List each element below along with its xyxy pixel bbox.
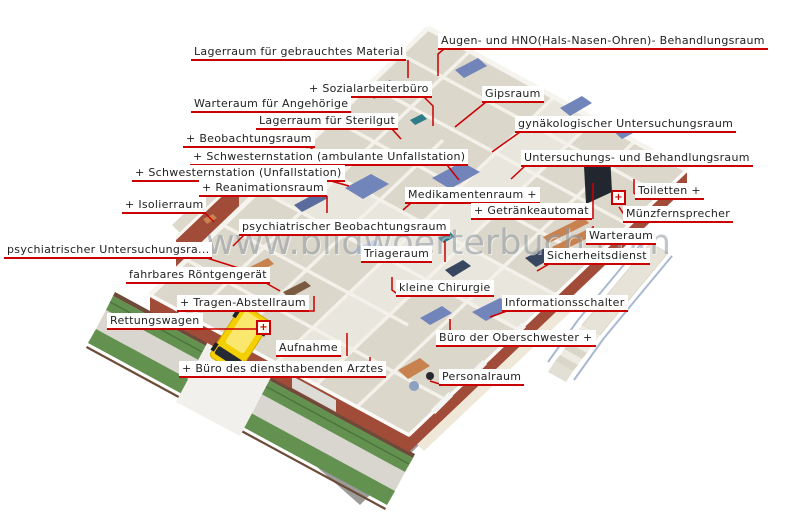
label-warteraum-fuer-angehoerige[interactable]: Warteraum für Angehörige <box>191 96 351 113</box>
label-medikamentenraum[interactable]: Medikamentenraum + <box>405 187 540 204</box>
label-schwesternstation-ambulante[interactable]: + Schwesternstation (ambulante Unfallsta… <box>190 149 468 166</box>
label-personalraum[interactable]: Personalraum <box>439 369 524 386</box>
label-muenzfernsprecher[interactable]: Münzfernsprecher <box>623 206 733 223</box>
label-fahrbares-roentgengeraet[interactable]: fahrbares Röntgengerät <box>126 267 270 284</box>
label-triageraum[interactable]: Triageraum <box>361 246 432 263</box>
label-kleine-chirurgie[interactable]: kleine Chirurgie <box>396 280 494 297</box>
label-lagerraum-fuer-sterilgut[interactable]: Lagerraum für Sterilgut <box>256 113 398 130</box>
label-untersuchungs-und-behandlungsraum[interactable]: Untersuchungs- und Behandlungsraum <box>521 150 753 167</box>
plus-marker-muenzfernsprecher[interactable]: + <box>611 190 626 205</box>
label-isolierraum[interactable]: + Isolierraum <box>122 197 206 214</box>
hospital-emergency-diagram: www.bildwoerterbuch.com <box>0 0 800 527</box>
label-gynaekologischer-untersuchungsraum[interactable]: gynäkologischer Untersuchungsraum <box>515 116 736 133</box>
label-toiletten[interactable]: Toiletten + <box>635 183 704 200</box>
label-getraenkeautomat[interactable]: + Getränkeautomat <box>471 203 592 220</box>
label-gipsraum[interactable]: Gipsraum <box>482 86 544 103</box>
label-lagerraum-gebrauchtes-material[interactable]: Lagerraum für gebrauchtes Material <box>191 44 406 61</box>
label-aufnahme[interactable]: Aufnahme <box>276 340 341 357</box>
label-psychiatrischer-beobachtungsraum[interactable]: psychiatrischer Beobachtungsraum <box>239 219 450 236</box>
label-reanimationsraum[interactable]: + Reanimationsraum <box>199 180 327 197</box>
label-buero-des-diensthabenden-arztes[interactable]: + Büro des diensthabenden Arztes <box>179 361 386 378</box>
label-augen-hno-behandlungsraum[interactable]: Augen- und HNO(Hals-Nasen-Ohren)- Behand… <box>438 33 768 50</box>
plus-marker-rettungswagen[interactable]: + <box>256 320 271 335</box>
label-informationsschalter[interactable]: Informationsschalter <box>502 295 628 312</box>
label-warteraum[interactable]: Warteraum <box>586 228 656 245</box>
leader-lines <box>0 0 800 527</box>
label-tragen-abstellraum[interactable]: + Tragen-Abstellraum <box>177 295 309 312</box>
label-sicherheitsdienst[interactable]: Sicherheitsdienst <box>544 248 650 265</box>
label-beobachtungsraum[interactable]: + Beobachtungsraum <box>183 131 315 148</box>
label-psychiatrischer-untersuchungsraum[interactable]: psychiatrischer Untersuchungsra... <box>4 242 212 259</box>
label-rettungswagen[interactable]: Rettungswagen <box>107 313 203 330</box>
label-buero-der-oberschwester[interactable]: Büro der Oberschwester + <box>436 330 596 347</box>
